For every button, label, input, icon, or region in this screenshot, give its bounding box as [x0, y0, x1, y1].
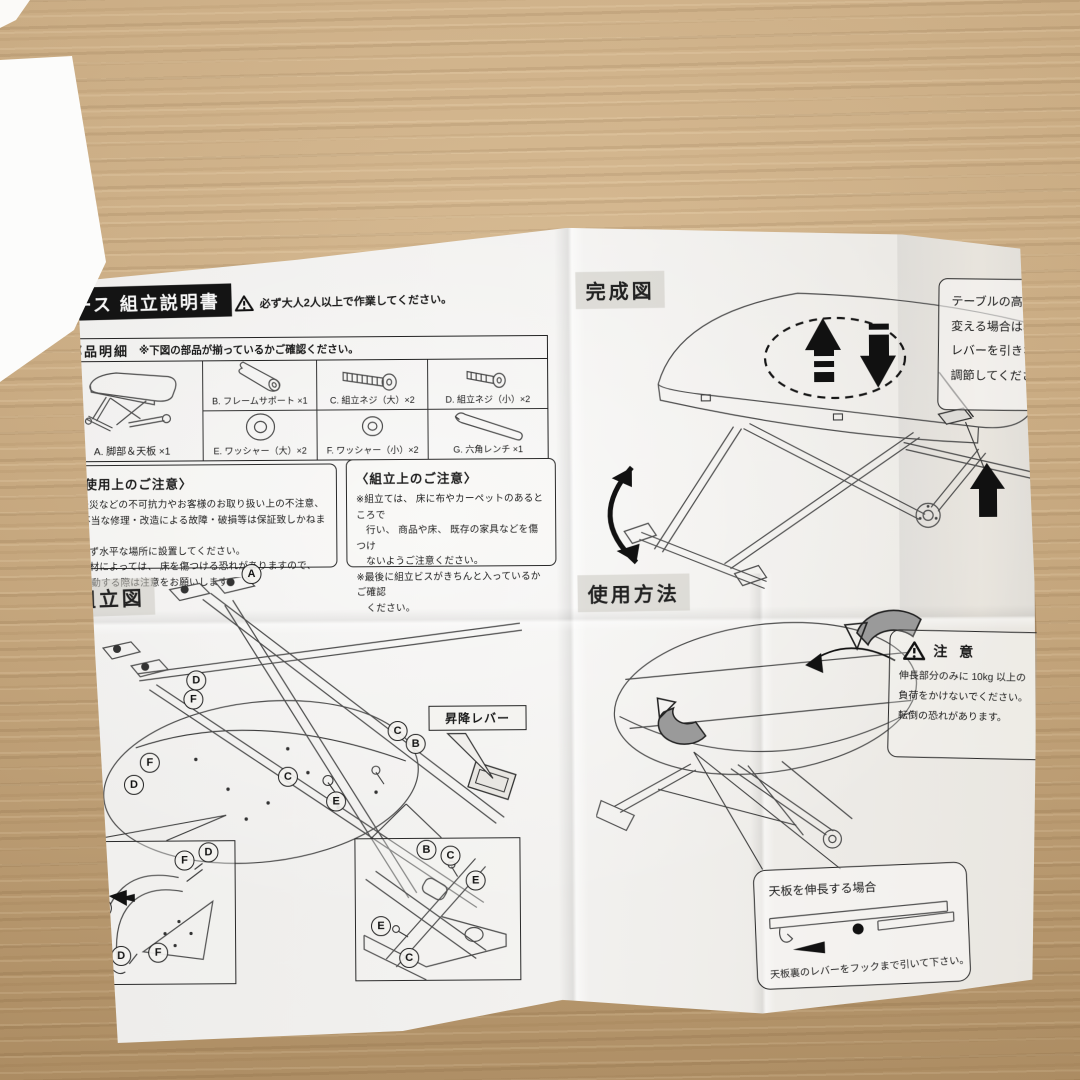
usage-caution-line: 不当な修理・改造による故障・破損等は保証致しかねます。	[71, 512, 327, 545]
detail-inset-right-sketch	[355, 838, 520, 980]
part-label-b: B. フレームサポート ×1	[212, 394, 308, 411]
lift-lever-tag-text: 昇降レバー	[445, 709, 510, 726]
paper-scrap	[0, 0, 40, 34]
bubble-line: 変える場合は、	[951, 314, 1073, 340]
parts-note: ※下図の部品が揃っているかご確認ください。	[139, 341, 359, 358]
small-flip-arrow-icon	[658, 708, 705, 744]
part-label-e: E. ワッシャー（大）×2	[213, 444, 306, 461]
table-frame-icon	[76, 361, 189, 443]
bubble-line: 調節してください。	[950, 363, 1072, 389]
callout-letter-d: D	[198, 842, 218, 862]
parts-header: 部品明細 ※下図の部品が揃っているかご確認ください。	[61, 336, 547, 362]
pull-left-arrow-icon	[793, 941, 825, 954]
photo-scene: ース 組立説明書 必ず大人2人以上で作業してください。 部品明細 ※下図の部品が…	[0, 0, 1080, 1080]
instruction-sheet: ース 組立説明書 必ず大人2人以上で作業してください。 部品明細 ※下図の部品が…	[52, 222, 1038, 1059]
callout-letter-c: C	[278, 767, 298, 787]
callout-letter-a: A	[241, 564, 261, 584]
callout-letter-f: F	[174, 850, 194, 870]
part-cell-a: A. 脚部＆天板 ×1	[61, 361, 203, 461]
detail-inset-right: B C E E C	[354, 837, 521, 981]
usage-caution-line: ※天災などの不可抗力やお客様のお取り扱い上の不注意、	[71, 497, 327, 514]
part-cell-c: C. 組立ネジ（大）×2	[316, 360, 427, 410]
caution-triangle-icon	[903, 640, 925, 660]
part-cell-d: D. 組立ネジ（小）×2	[427, 359, 547, 409]
lift-lever-tag: 昇降レバー	[428, 705, 526, 731]
usage-caution-box: 〈使用上のご注意〉 ※天災などの不可抗力やお客様のお取り扱い上の不注意、 不当な…	[61, 463, 338, 569]
cylinder-icon	[234, 360, 286, 394]
bubble-line: テーブルの高さを	[951, 289, 1073, 315]
parts-table: 部品明細 ※下図の部品が揃っているかご確認ください。	[60, 335, 549, 462]
part-label-a: A. 脚部＆天板 ×1	[94, 443, 171, 462]
callout-letter-e: E	[326, 791, 346, 811]
raise-arrow-icon	[805, 318, 841, 382]
callout-letter-c: C	[440, 846, 460, 866]
extend-table-bubble: 天板を伸長する場合 天板裏のレバーをフックまで引いて下さい。	[753, 861, 972, 990]
header-warning-text: 必ず大人2人以上で作業してください。	[259, 290, 452, 311]
large-washer-icon	[242, 410, 278, 444]
callout-letter-a: A	[92, 898, 112, 918]
callout-letter-d: D	[111, 946, 131, 966]
assembly-caution-line: 行い、 商品や床、 既存の家具などを傷つけ	[356, 522, 546, 554]
part-label-d: D. 組立ネジ（小）×2	[445, 392, 530, 409]
part-label-f: F. ワッシャー（小）×2	[327, 443, 419, 460]
hex-wrench-icon	[449, 408, 527, 443]
callout-letter-f: F	[140, 753, 160, 773]
caution-title: 注 意	[933, 641, 977, 662]
small-screw-icon	[463, 359, 513, 392]
part-label-g: G. 六角レンチ ×1	[453, 442, 523, 458]
warning-triangle-icon	[234, 295, 253, 312]
lever-dot	[852, 923, 863, 934]
usage-caution-line: ※床材によっては、 床を傷つける恐れがありますので、	[71, 559, 327, 576]
part-cell-b: B. フレームサポート ×1	[202, 361, 316, 411]
usage-caution-title: 〈使用上のご注意〉	[71, 473, 327, 494]
detail-inset-left-sketch	[82, 841, 235, 984]
assembly-caution-line: ※組立ては、 床に布やカーペットのあるところで	[356, 491, 546, 523]
callout-letter-d: D	[186, 670, 206, 690]
manual-title: ース 組立説明書	[73, 287, 220, 317]
assembly-caution-line: ないようご注意ください。	[356, 553, 546, 570]
callout-letter-b: B	[416, 840, 436, 860]
callout-letter-f: F	[183, 689, 203, 709]
bubble-line: レバーを引きながら	[951, 338, 1073, 364]
extend-bubble-title: 天板を伸長する場合	[768, 878, 877, 900]
caution-line: 転倒の恐れがあります。	[898, 706, 1054, 729]
part-cell-g: G. 六角レンチ ×1	[427, 408, 547, 459]
part-cell-f: F. ワッシャー（小）×2	[316, 409, 427, 460]
part-label-c: C. 組立ネジ（大）×2	[330, 393, 415, 410]
assembly-caution-title: 〈組立上のご注意〉	[356, 467, 546, 487]
part-cell-e: E. ワッシャー（大）×2	[202, 410, 316, 461]
assembly-caution-box: 〈組立上のご注意〉 ※組立ては、 床に布やカーペットのあるところで 行い、 商品…	[346, 458, 557, 567]
parts-grid: A. 脚部＆天板 ×1 B. フレームサポート ×1	[61, 359, 548, 461]
height-lever	[938, 408, 971, 424]
usage-caution-line: ※必ず水平な場所に設置してください。	[71, 543, 327, 560]
callout-letter-b: B	[406, 734, 426, 754]
height-adjust-bubble: テーブルの高さを 変える場合は、 レバーを引きながら 調節してください。	[937, 278, 1074, 411]
small-washer-icon	[358, 409, 386, 443]
detail-inset-left: F D A D F	[81, 840, 236, 985]
parts-title: 部品明細	[61, 340, 139, 360]
header-warning: 必ず大人2人以上で作業してください。	[234, 290, 452, 312]
callout-letter-c: C	[399, 948, 419, 968]
callout-letter-e: E	[466, 870, 486, 890]
callout-letter-e: E	[371, 916, 391, 936]
caution-box: 注 意 伸長部分のみに 10kg 以上の 負荷をかけないでください。 転倒の恐れ…	[887, 629, 1066, 761]
extend-lever-diagram	[765, 897, 959, 961]
callout-letter-d: D	[124, 775, 144, 795]
callout-letter-f: F	[148, 943, 168, 963]
large-screw-icon	[339, 360, 405, 393]
callout-letter-c: C	[388, 721, 408, 741]
